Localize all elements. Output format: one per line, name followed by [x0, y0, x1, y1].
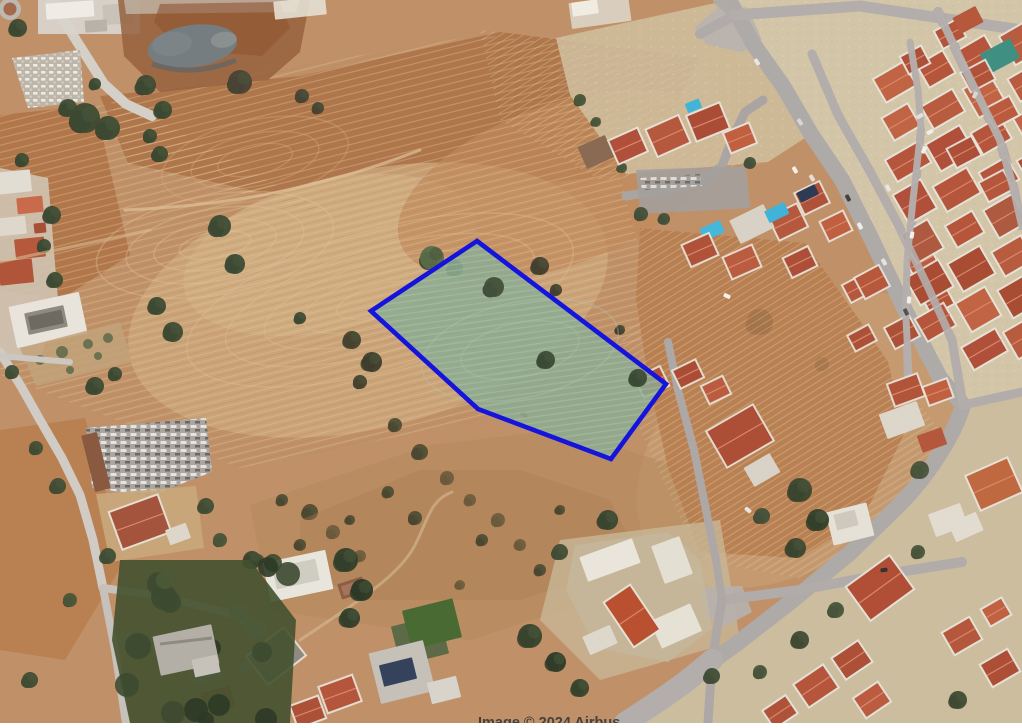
svg-text:Image © 2024 Airbus: Image © 2024 Airbus: [478, 715, 620, 723]
